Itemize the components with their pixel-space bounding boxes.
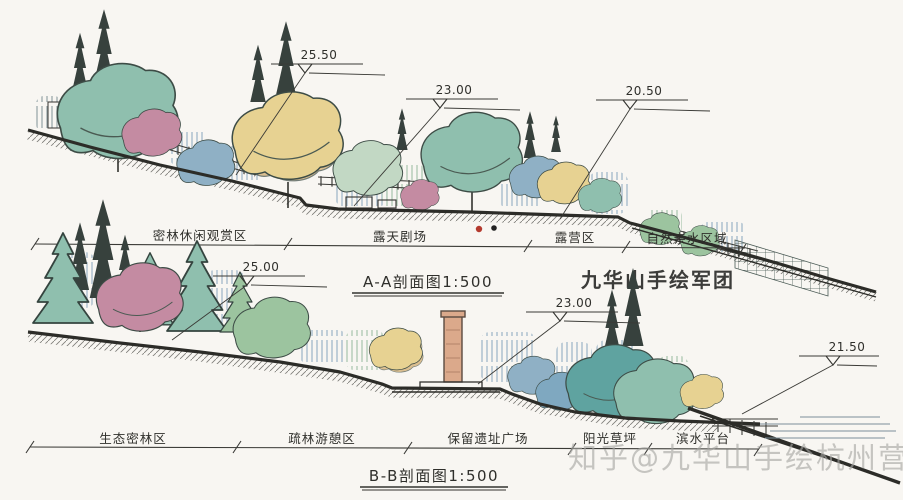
section-b-title: B-B剖面图1:500 xyxy=(360,467,508,490)
zone-label-b-2: 保留遗址广场 xyxy=(447,431,528,446)
zone-label-a-0: 密林休闲观赏区 xyxy=(153,228,248,243)
elevation-marker-a-1: 23.00 xyxy=(406,83,520,110)
section-b-title-text: B-B剖面图1:500 xyxy=(369,467,499,485)
sketch-canvas: 25.50 23.00 20.50 密林休闲观赏区 露天剧场 露营区 自然亲水区… xyxy=(0,0,903,500)
leader-line xyxy=(742,365,833,414)
section-a-title: A-A剖面图1:500 xyxy=(352,273,504,296)
zone-label-a-3: 自然亲水区域 xyxy=(646,231,727,246)
water-lines xyxy=(760,417,896,438)
elevation-value: 23.00 xyxy=(556,296,593,310)
grid-fence xyxy=(735,240,828,296)
red-dot xyxy=(476,226,482,232)
zone-label-a-2: 露营区 xyxy=(555,230,596,245)
elevation-value: 25.50 xyxy=(301,48,338,62)
zone-label-b-0: 生态密林区 xyxy=(99,431,167,446)
elevation-value: 25.00 xyxy=(243,260,280,274)
elevation-value: 21.50 xyxy=(829,340,866,354)
section-drawing: 25.50 23.00 20.50 密林休闲观赏区 露天剧场 露营区 自然亲水区… xyxy=(0,0,903,500)
chimney-ruin xyxy=(420,311,482,389)
elevation-value: 23.00 xyxy=(436,83,473,97)
elevation-value: 20.50 xyxy=(626,84,663,98)
tree-canopy xyxy=(232,92,343,179)
corner-watermark: 知乎@九华山手绘杭州营 xyxy=(568,441,903,475)
elevation-marker-b-1: 23.00 xyxy=(526,296,640,323)
zone-label-a-1: 露天剧场 xyxy=(373,229,427,244)
brand-watermark: 九华山手绘军团 xyxy=(580,268,735,292)
section-a-title-text: A-A剖面图1:500 xyxy=(363,273,493,291)
zone-label-b-1: 疏林游憩区 xyxy=(288,431,356,446)
elevation-marker-a-2: 20.50 xyxy=(596,84,710,111)
elevation-marker-b-2: 21.50 xyxy=(799,340,879,366)
tree-canopy xyxy=(421,112,522,192)
black-dot xyxy=(491,225,497,231)
